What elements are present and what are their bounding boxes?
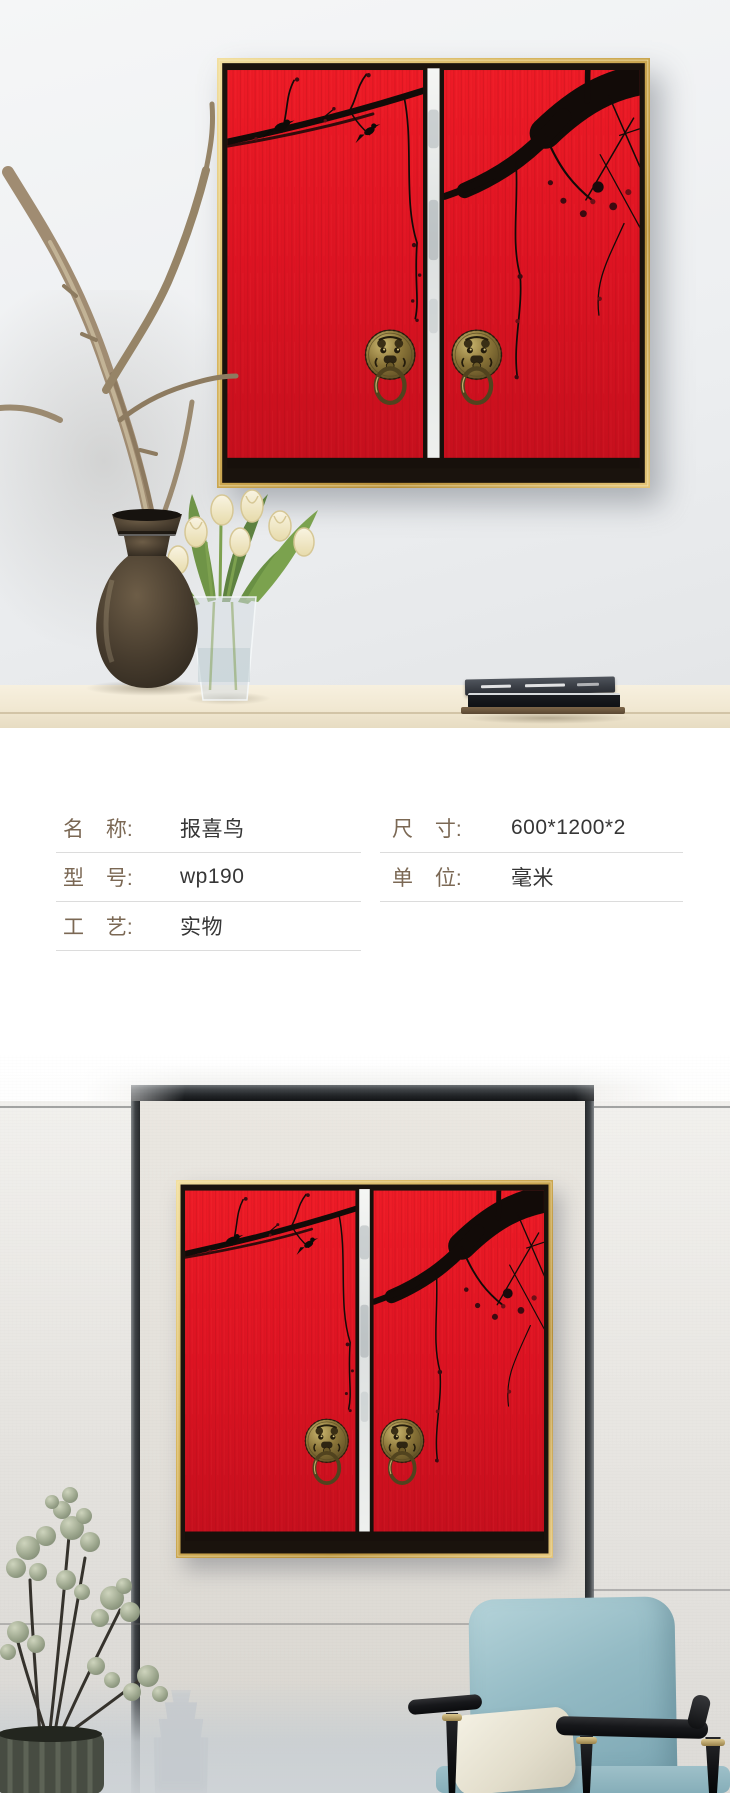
armchair-brass-collar <box>701 1739 725 1746</box>
product-spec-panel: 名 称: 报喜鸟 型 号: wp190 工 艺: 实物 尺 寸: 600*120… <box>0 728 730 1055</box>
spec-column-right: 尺 寸: 600*1200*2 单 位: 毫米 <box>380 804 683 902</box>
spec-row-model: 型 号: wp190 <box>56 853 361 902</box>
glass-vase <box>190 597 256 700</box>
spec-label: 名 称: <box>56 813 180 843</box>
spec-row-unit: 单 位: 毫米 <box>380 853 683 902</box>
spec-column-left: 名 称: 报喜鸟 型 号: wp190 工 艺: 实物 <box>56 804 361 951</box>
armchair-brass-collar <box>576 1737 597 1744</box>
brown-vase <box>96 509 198 688</box>
ceiling-light <box>0 1055 730 1101</box>
spec-value: 600*1200*2 <box>511 816 626 840</box>
wall-groove <box>594 1106 730 1108</box>
fluted-planter <box>0 1726 104 1793</box>
armchair-brass-collar <box>442 1714 462 1721</box>
spec-row-name: 名 称: 报喜鸟 <box>56 804 361 853</box>
wall-groove <box>592 1589 730 1591</box>
spec-row-craft: 工 艺: 实物 <box>56 902 361 951</box>
wall-groove <box>0 1106 131 1108</box>
book-spine-mark <box>481 685 511 689</box>
spec-label: 尺 寸: <box>380 813 511 843</box>
armchair-armrest-right <box>556 1716 708 1739</box>
spec-value: wp190 <box>180 865 244 889</box>
book-board <box>461 707 625 714</box>
book-bottom <box>468 693 620 708</box>
spec-label: 单 位: <box>380 862 511 892</box>
room-photo-top <box>0 0 730 728</box>
room-photo-bottom <box>0 1055 730 1793</box>
spec-value: 报喜鸟 <box>180 813 245 843</box>
book-spine-mark <box>525 683 565 687</box>
spec-label: 工 艺: <box>56 911 180 941</box>
spec-value: 实物 <box>180 911 223 941</box>
spec-value: 毫米 <box>511 862 554 892</box>
berry-plant <box>0 1280 260 1793</box>
spec-label: 型 号: <box>56 862 180 892</box>
dried-branches <box>0 104 236 520</box>
product-page: 名 称: 报喜鸟 型 号: wp190 工 艺: 实物 尺 寸: 600*120… <box>0 0 730 1793</box>
branch-vase-and-tulips <box>0 90 360 728</box>
book-spine-mark <box>577 683 599 686</box>
spec-row-size: 尺 寸: 600*1200*2 <box>380 804 683 853</box>
